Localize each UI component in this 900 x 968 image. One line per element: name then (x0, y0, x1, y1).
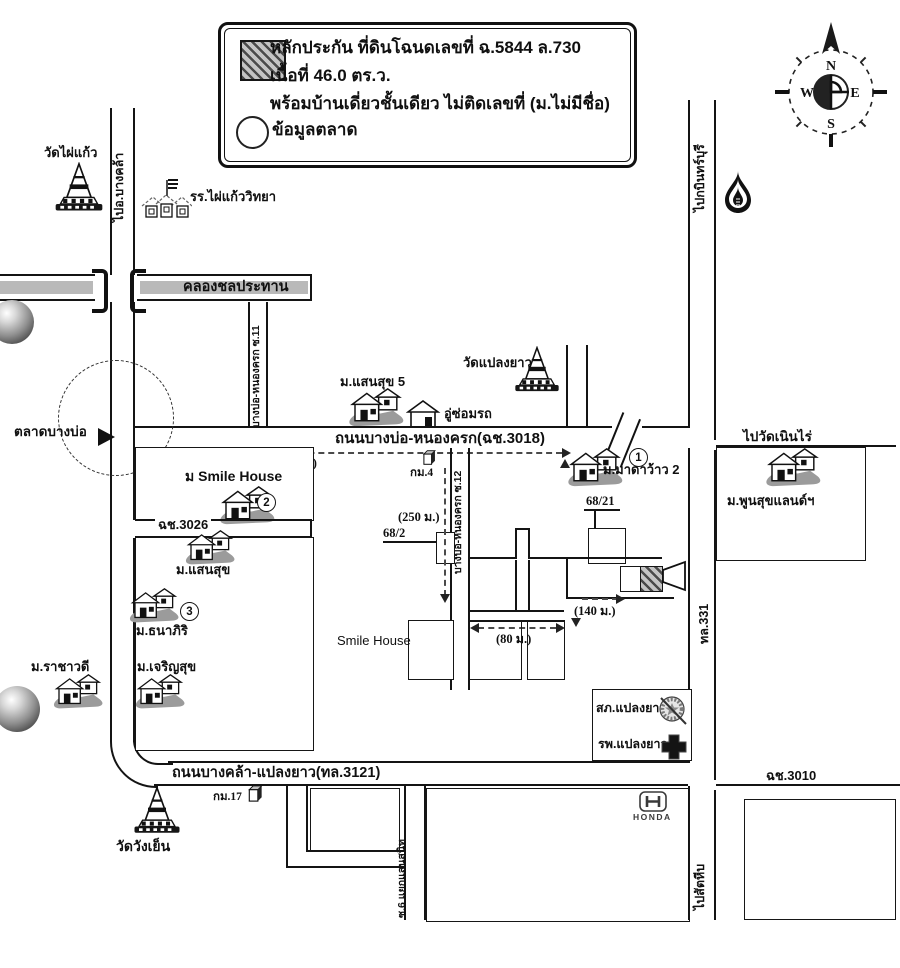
notch-cap (515, 528, 530, 530)
canal-end-cap (310, 274, 312, 301)
grid-block-3 (527, 620, 565, 680)
legend-line3: พร้อมบ้านเดี่ยวชั้นเดียว ไม่ติดเลขที่ (ม… (270, 94, 610, 114)
legend-line2: เนื้อที่ 46.0 ตร.ว. (270, 66, 391, 86)
smile-house-en-label: Smile House (337, 634, 411, 649)
ptt-station-icon (722, 170, 754, 214)
bottom-road-bottom-line (154, 784, 688, 786)
dist-250-label: (250 ม.) (398, 510, 440, 524)
connector-bottom-line (286, 866, 406, 868)
charoensuk-label: ม.เจริญสุข (137, 660, 196, 675)
to-bang-khla-label: ไปอ.บางคล้า (112, 126, 126, 222)
wat-plaeng-yao-road-east (586, 345, 588, 428)
canal-bracket-east (130, 269, 146, 313)
temple-icon-wat-phai-kaeo (50, 162, 108, 218)
housing-icon-charoensuk (132, 674, 186, 710)
left-road-east-line-top (133, 108, 135, 275)
temple-icon-wat-wang-yen (128, 786, 186, 840)
canal-bottom-line-east (137, 299, 312, 301)
notch-west (515, 528, 517, 559)
phunsuk-land-label: ม.พูนสุขแลนด์ฯ (727, 494, 814, 509)
compass-n: N (826, 59, 836, 74)
smile-house-th-label: ม Smile House (185, 468, 282, 484)
main-road-label: ถนนบางบ่อ-หนองครก(ฉช.3018) (335, 430, 545, 447)
block-e (744, 799, 896, 920)
compass-s: S (827, 117, 835, 132)
vstreet-west (515, 560, 517, 612)
school-icon-phai-kaeo (140, 176, 192, 222)
legend-line1: หลักประกัน ที่ดินโฉนดเลขที่ ฉ.5844 ล.730 (270, 38, 581, 58)
km17-post-icon (245, 784, 265, 803)
madawow2-label: ม.มาดาว้าว 2 (603, 463, 680, 478)
soi11-label: บางบ่อ-หนองครก ซ.11 (250, 304, 262, 428)
measure-250-line (444, 468, 446, 596)
neighbor-house-plot (620, 566, 642, 592)
canal-top-line-east (137, 274, 312, 276)
canal-water-west (0, 281, 93, 294)
collateral-property-plot (640, 566, 663, 592)
cch3010-label: ฉช.3010 (766, 769, 816, 784)
soi-left-line (566, 557, 568, 599)
honda-label: HONDA (633, 813, 672, 823)
thanaphiri-label: ม.ธนาภิริ (136, 624, 188, 639)
roadA-west-line (286, 786, 288, 868)
notch-east (528, 528, 530, 559)
grid-block-1 (408, 620, 454, 680)
soi-top-line (566, 557, 662, 559)
cch3026-end-cap (310, 519, 312, 538)
wat-wang-yen-label: วัดวังเย็น (116, 838, 170, 854)
police-badge-icon (656, 694, 690, 728)
hwy331-west-line-a (688, 100, 690, 428)
vstreet-east (528, 560, 530, 612)
property-flag-icon (661, 560, 687, 596)
to-wat-noen-rai-label: ไปวัดเนินไร่ (743, 429, 812, 445)
block-f1 (310, 788, 400, 852)
housing-icon-phunsuk (762, 448, 822, 488)
housing-icon-thanaphiri (126, 588, 180, 624)
compass-w: W (800, 86, 814, 101)
no68-21-label: 68/21 (584, 494, 620, 511)
temple-icon-wat-plaeng-yao (510, 346, 564, 398)
housing-icon-rachawadee (50, 674, 104, 710)
street-559-a (470, 557, 515, 559)
no68-2-label: 68/2 (383, 526, 405, 540)
artifact-sphere-bottom (0, 686, 40, 732)
canal-top-line-west (0, 274, 95, 276)
main-road-line-a (135, 426, 612, 428)
measure-140-line (582, 598, 618, 600)
dist-140-label: (140 ม.) (574, 604, 616, 618)
msansuk-label: ม.แสนสุข (176, 563, 230, 578)
hospital-label: รพ.แปลงยาว (598, 737, 668, 751)
to-kabin-buri-label: ไปกบินทร์บุรี (693, 112, 707, 212)
km4-post-icon (420, 449, 438, 466)
compass-e: E (850, 86, 859, 101)
compass-rose-icon: N S W E (773, 20, 889, 148)
hwy331-east-line-c (714, 790, 716, 920)
hwy331-east-line-a (714, 100, 716, 440)
km4-label: กม.4 (410, 467, 433, 480)
market-data-circle (236, 116, 269, 149)
marker-2-circle: 2 (257, 493, 276, 512)
street-559-b (528, 557, 566, 559)
measure-250-arrow-down (440, 594, 450, 603)
no68-2-underline (383, 541, 438, 543)
legend-line4: ข้อมูลตลาด (272, 120, 358, 140)
soi11-east-line (266, 302, 268, 428)
garage-label: อู่ซ่อมรถ (444, 407, 492, 422)
artifact-sphere-top (0, 300, 34, 344)
honda-logo-icon (638, 790, 668, 814)
canal-bracket-west (92, 269, 108, 313)
school-phai-kaeo-label: รร.ไผ่แก้ววิทยา (190, 190, 276, 205)
talat-arrow-icon (98, 428, 115, 446)
marker-3-circle: 3 (180, 602, 199, 621)
bottom-road-label: ถนนบางคล้า-แปลงยาว(ทล.3121) (172, 765, 380, 782)
hospital-cross-icon (660, 733, 688, 761)
bottom-road-top-line (168, 761, 688, 763)
housing-icon-msansuk (182, 530, 236, 566)
housing-icon-msansuk5 (344, 388, 406, 428)
wat-plaeng-yao-road-west (566, 345, 568, 428)
street-612 (468, 610, 564, 612)
roadA-east-line (306, 786, 308, 852)
real-estate-location-map: หลักประกัน ที่ดินโฉนดเลขที่ ฉ.5844 ล.730… (0, 0, 900, 968)
km17-label: กม.17 (213, 791, 242, 804)
rachawadee-label: ม.ราชาวดี (31, 660, 89, 675)
measure-140-arrow-down (571, 618, 581, 627)
talat-bang-bo-label: ตลาดบางบ่อ (14, 424, 87, 440)
canal-label: คลองชลประทาน (183, 279, 289, 296)
measure-140-arrow-right (616, 594, 625, 604)
grid-block-2 (468, 620, 522, 680)
hwy331-label: ทล.331 (697, 590, 711, 644)
to-sattahip-label: ไปสัตหีบ (693, 844, 707, 910)
wat-phai-kaeo-label: วัดไผ่แก้ว (44, 146, 97, 161)
cch3010-road-line (716, 784, 900, 786)
main-road-line-b (642, 426, 688, 428)
